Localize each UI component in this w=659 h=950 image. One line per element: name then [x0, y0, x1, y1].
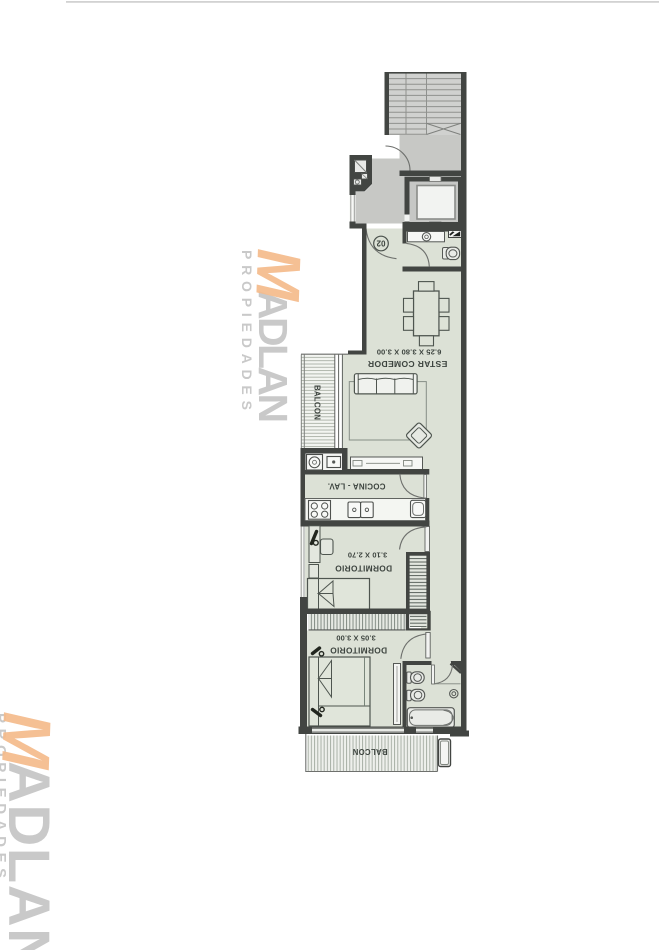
svg-text:DORMITORIO: DORMITORIO: [335, 563, 392, 573]
svg-text:3.05 X 3.00: 3.05 X 3.00: [336, 633, 375, 642]
svg-text:COCINA - LAV.: COCINA - LAV.: [328, 482, 386, 491]
svg-text:ADLAN: ADLAN: [250, 290, 296, 420]
svg-text:BALCON: BALCON: [352, 747, 387, 756]
svg-text:ADLAN: ADLAN: [0, 761, 61, 950]
svg-text:M: M: [242, 248, 313, 303]
svg-text:BALCON: BALCON: [313, 385, 322, 420]
svg-text:02: 02: [376, 239, 385, 248]
svg-text:6.25 X 3.80 X 3.00: 6.25 X 3.80 X 3.00: [377, 348, 442, 357]
svg-text:3.10 X 2.70: 3.10 X 2.70: [348, 551, 387, 560]
svg-text:M: M: [0, 710, 65, 771]
svg-text:DORMITORIO: DORMITORIO: [330, 645, 387, 655]
svg-text:ESTAR COMEDOR: ESTAR COMEDOR: [367, 359, 447, 369]
